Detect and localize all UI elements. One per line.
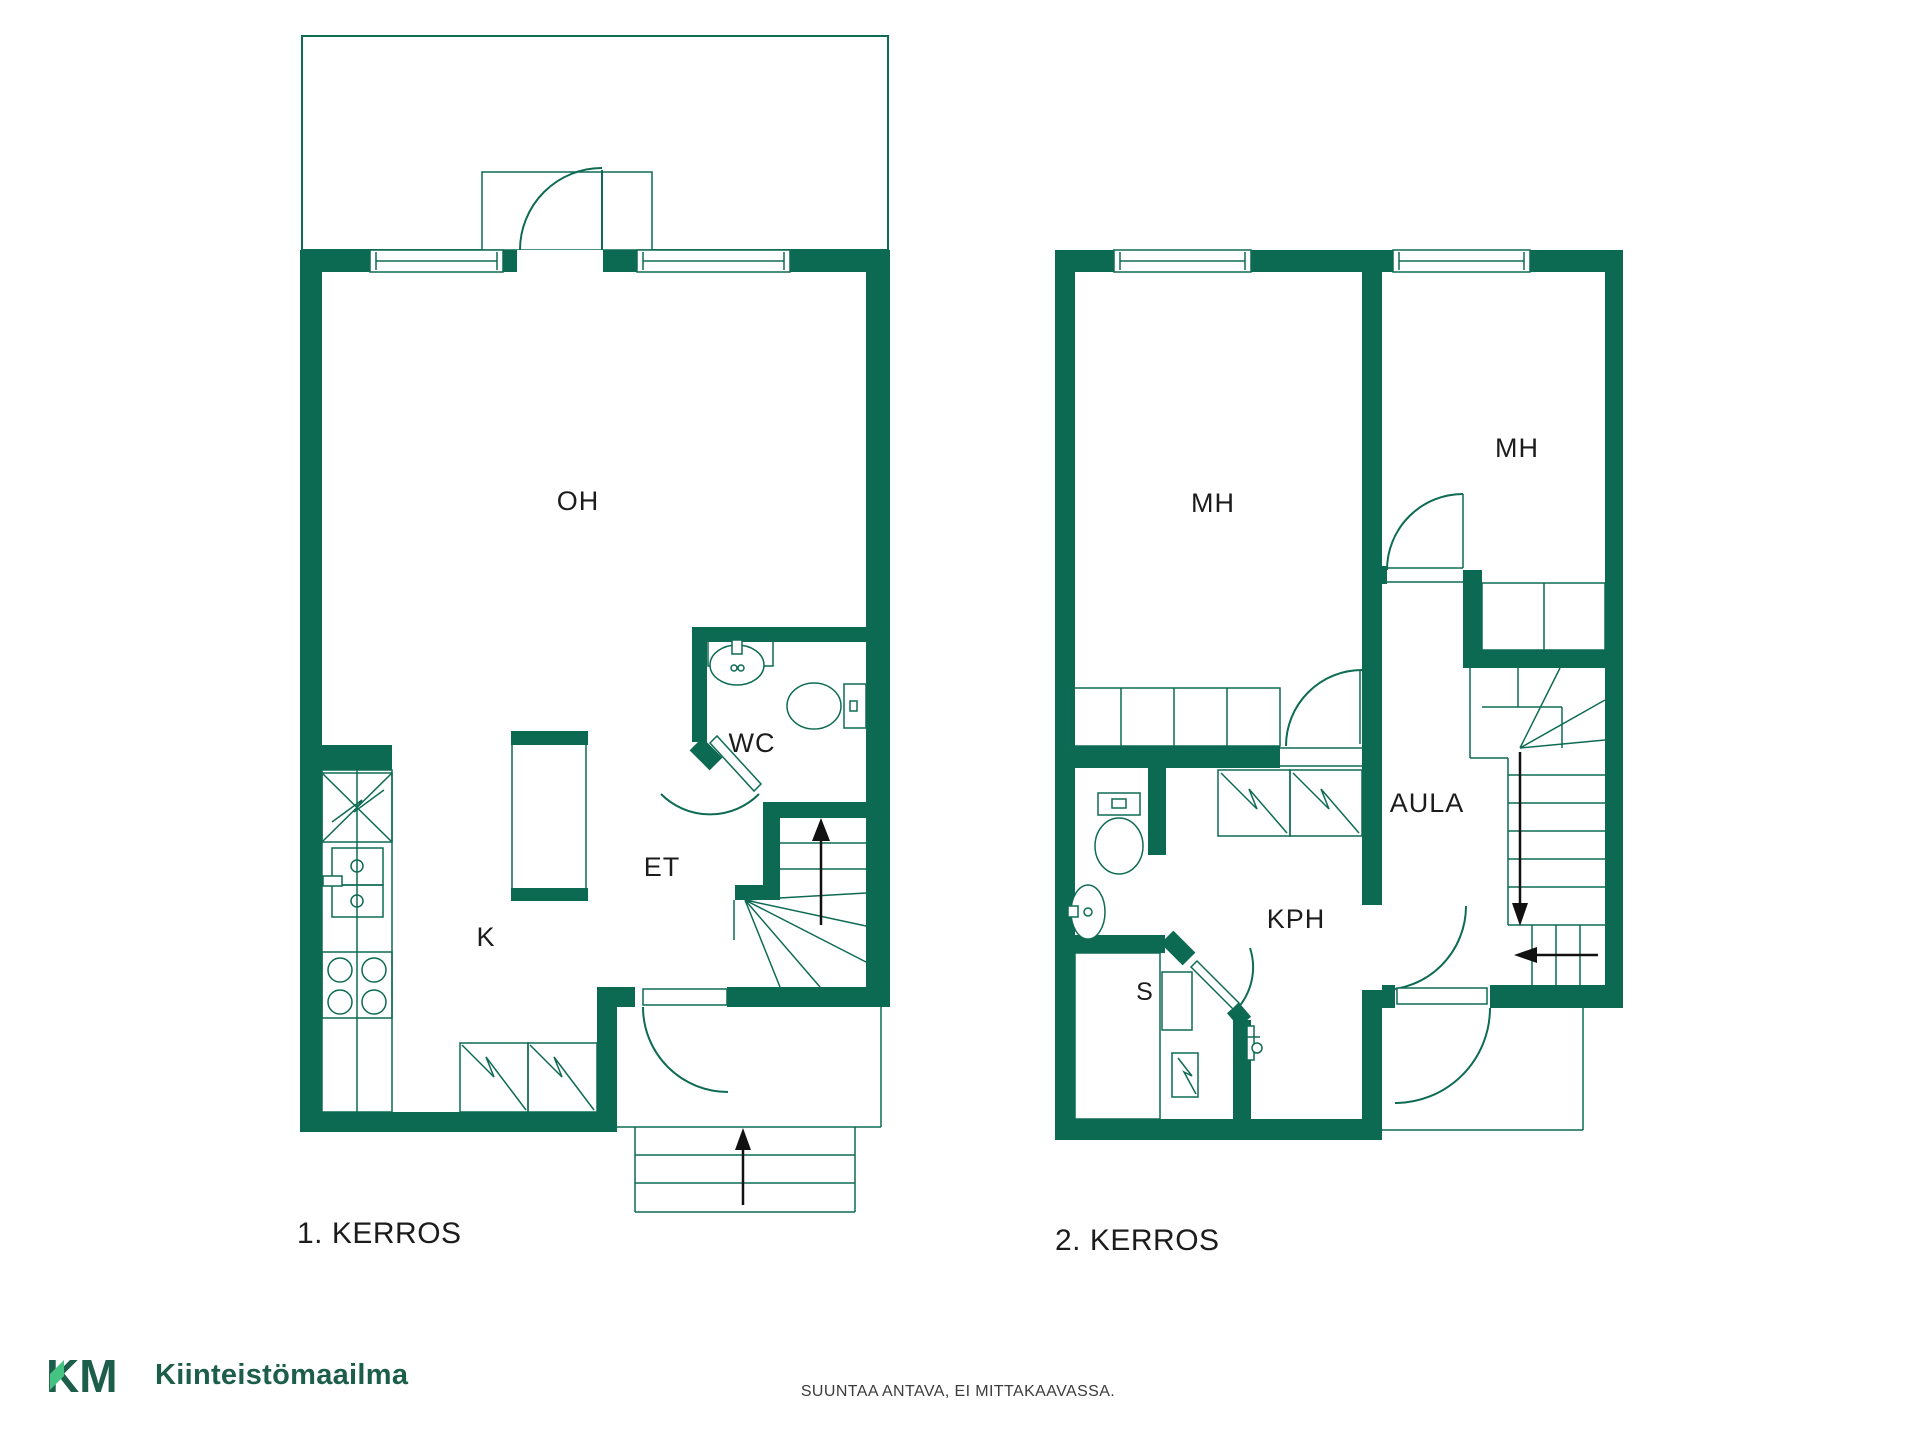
room-label-kph: KPH — [1267, 904, 1326, 934]
kph-door — [1382, 906, 1466, 990]
kitchen-counter — [322, 770, 392, 1112]
floor2-title: 2. KERROS — [1055, 1224, 1220, 1257]
room-label-sauna: S — [1136, 978, 1154, 1006]
room-label-et: ET — [644, 852, 681, 882]
room-label-living: OH — [557, 486, 600, 516]
wc-toilet — [787, 683, 866, 729]
room-label-aula: AULA — [1390, 788, 1465, 818]
room-label-bedroom-left: MH — [1191, 488, 1235, 518]
entry-door — [643, 989, 728, 1092]
room-label-kitchen: K — [476, 922, 495, 952]
floor1-stairs — [734, 818, 866, 987]
disclaimer-text: SUUNTAA ANTAVA, EI MITTAKAAVASSA. — [801, 1383, 1115, 1400]
entry-porch — [617, 1007, 881, 1127]
bedroom-left-door — [1280, 670, 1362, 766]
sauna-door — [1191, 948, 1253, 1010]
room-label-wc: WC — [729, 728, 776, 758]
km-logo: KM Kiinteistömaailma — [46, 1350, 409, 1402]
floor2-balcony — [1382, 988, 1583, 1130]
floor-plan-canvas: OH WC ET K 1. KERROS — [0, 0, 1920, 1440]
bedroom-right-door — [1387, 494, 1463, 582]
floor1-wardrobes — [460, 1043, 597, 1112]
kph-toilet — [1095, 793, 1143, 874]
kitchen-island — [512, 745, 586, 888]
floor2-plan: MH MH AULA KPH S 2. KERROS — [1055, 250, 1623, 1257]
wc-sink — [708, 640, 773, 685]
floor1-plan: OH WC ET K 1. KERROS — [297, 36, 890, 1250]
floor1-terrace — [302, 36, 888, 250]
room-label-bedroom-right: MH — [1495, 433, 1539, 463]
brand-name: Kiinteistömaailma — [155, 1359, 409, 1391]
floor2-walls — [1055, 250, 1623, 1140]
sauna-diagonal-wall-lower — [1233, 1008, 1245, 1022]
bedroom-right-closets — [1482, 583, 1605, 650]
sauna-diagonal-wall — [1167, 937, 1189, 959]
floor1-title: 1. KERROS — [297, 1217, 462, 1250]
floor-plan-page: OH WC ET K 1. KERROS — [0, 0, 1920, 1440]
sauna-heater — [1172, 1053, 1198, 1097]
entry-steps — [635, 1127, 855, 1212]
footer: KM Kiinteistömaailma SUUNTAA ANTAVA, EI … — [46, 1350, 1115, 1402]
floor2-stairs — [1470, 665, 1605, 985]
kph-cabinets — [1218, 770, 1362, 836]
bedroom-left-closets — [1068, 688, 1280, 746]
